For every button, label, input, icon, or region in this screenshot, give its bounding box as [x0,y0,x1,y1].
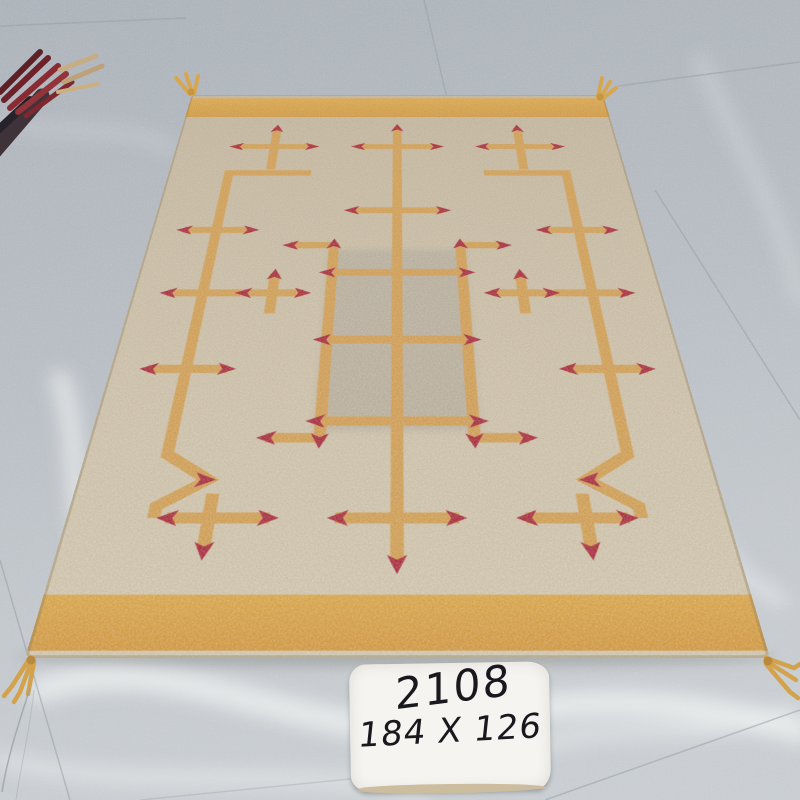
label-card: 2108 184 X 126 [349,661,551,791]
rug-dimensions: 184 X 126 [348,708,552,756]
photo-scene: 2108 184 X 126 [0,0,800,800]
